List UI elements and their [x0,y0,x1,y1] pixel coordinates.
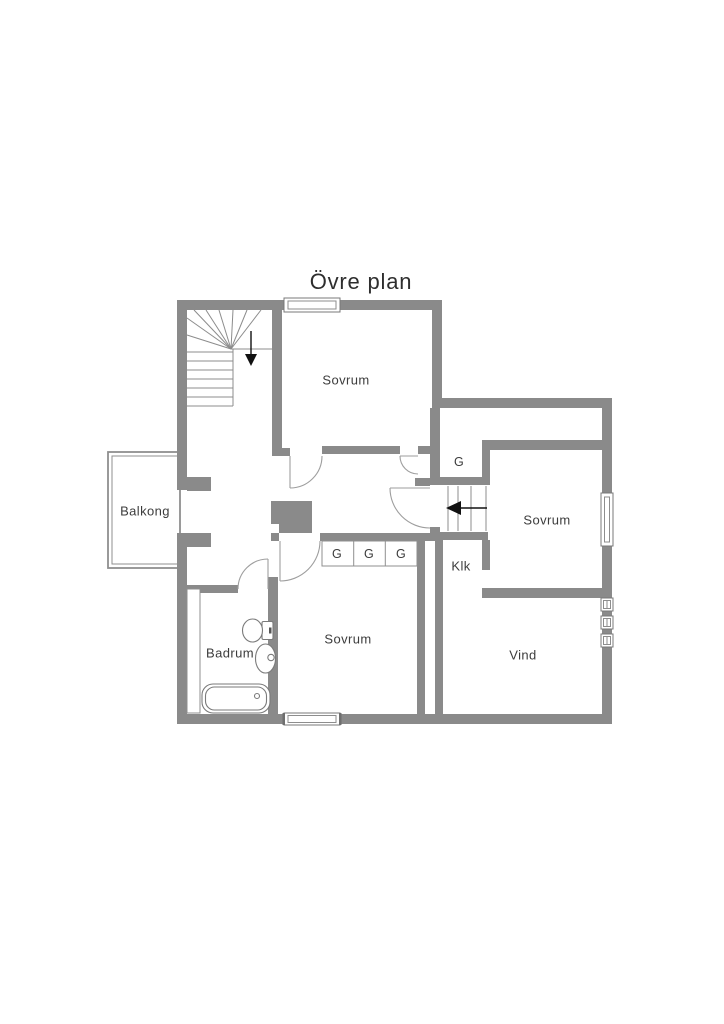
door-hall-annex [390,488,430,528]
label-walk-in-closet: Klk [451,559,470,574]
chimney-notch [271,524,279,533]
hall-east-wall-upper [430,408,440,485]
wall-bottom [177,714,612,724]
label-attic: Vind [509,648,536,663]
stairwell-wall-stub [272,448,290,456]
stair-direction-left-icon [446,501,487,515]
floor-plan-drawing [0,0,724,1024]
floor-plan-page: Övre plan Balkong Sovrum Sovrum Sovrum B… [0,0,724,1024]
label-wardrobe-hall: G [454,455,464,469]
vent-icon [601,598,613,611]
bathtub-icon [202,684,270,713]
door-bedroom-top [290,456,322,488]
closet-east-wall [482,540,490,570]
plan-title: Övre plan [310,269,413,295]
label-balcony: Balkong [120,504,170,519]
window-bottom [283,713,342,725]
main-staircase [187,310,272,406]
vent-icon [601,634,613,647]
vent-icon [601,616,613,629]
stairwell-wall [272,310,282,456]
bathroom-niche [187,589,200,713]
label-wardrobe-1: G [332,547,342,561]
wardrobe-row-top-wall [320,533,443,541]
hall-west-stub-lower [187,533,211,547]
label-wardrobe-2: G [364,547,374,561]
small-stairs-south-wall [430,532,488,540]
label-wardrobe-3: G [396,547,406,561]
annex-staircase [446,486,487,531]
sink-icon [256,644,276,673]
hall-west-stub-upper [187,477,211,491]
doors [238,456,430,589]
label-bedroom-top: Sovrum [322,373,369,388]
window-top [284,298,340,312]
wall-main-right [432,300,442,408]
shaft-east-wall [435,541,443,714]
wall-left-upper [177,300,187,490]
window-right [601,493,613,546]
bedroom-top-south-wall [322,446,400,454]
annex-bedroom-south-wall [482,588,602,598]
small-stairs-north-wall [430,477,488,485]
wall-annex-top [432,398,612,408]
wall-right [602,398,612,724]
hall-east-wall-stub [415,478,430,486]
label-bedroom-bottom: Sovrum [324,632,371,647]
annex-bedroom-north-wall [482,440,602,450]
wall-left-lower [177,533,187,724]
bathroom-fixtures [202,619,276,713]
bedroom-bottom-east-wall [417,541,425,714]
chimney-stub [271,533,279,541]
door-bedroom-top-closet [400,456,418,474]
toilet-icon [243,619,274,642]
vents [601,598,613,647]
door-bathroom [238,559,268,589]
label-bedroom-right: Sovrum [523,513,570,528]
door-bedroom-bottom [280,541,320,581]
label-bathroom: Badrum [206,646,254,661]
